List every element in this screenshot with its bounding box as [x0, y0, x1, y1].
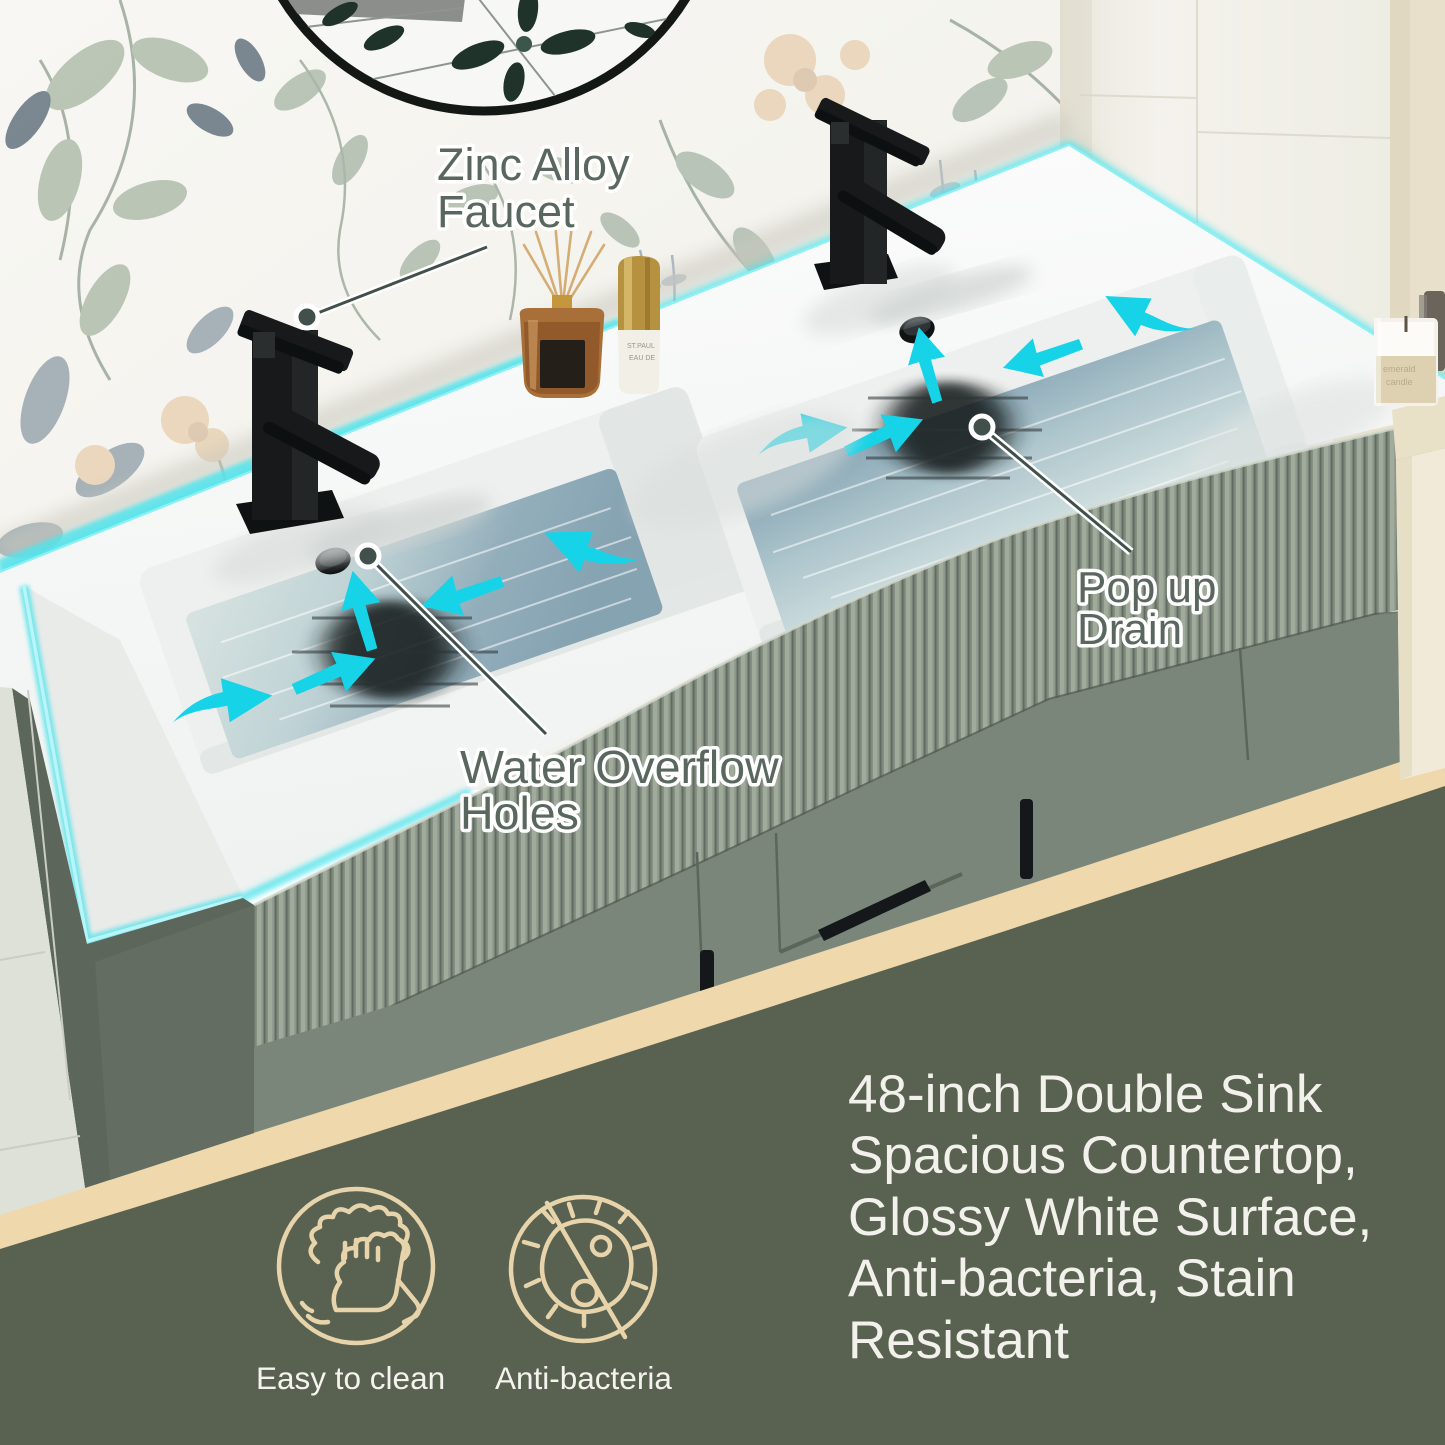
svg-text:EAU DE: EAU DE [629, 355, 655, 362]
svg-text:candle: candle [1386, 377, 1413, 387]
svg-text:Holes: Holes [460, 787, 579, 839]
svg-text:Easy to clean: Easy to clean [256, 1360, 445, 1396]
svg-text:Anti-bacteria: Anti-bacteria [495, 1360, 672, 1396]
svg-text:48-inch Double Sink: 48-inch Double Sink [848, 1065, 1323, 1124]
svg-text:Glossy White Surface,: Glossy White Surface, [848, 1188, 1372, 1247]
svg-text:Faucet: Faucet [437, 186, 575, 237]
svg-text:Zinc Alloy: Zinc Alloy [437, 139, 630, 190]
svg-text:Anti-bacteria, Stain: Anti-bacteria, Stain [848, 1249, 1296, 1308]
svg-text:Resistant: Resistant [848, 1311, 1069, 1370]
svg-text:ST.PAUL: ST.PAUL [627, 343, 655, 350]
svg-text:Spacious Countertop,: Spacious Countertop, [848, 1126, 1358, 1185]
svg-text:Drain: Drain [1077, 605, 1182, 654]
svg-text:emerald: emerald [1383, 364, 1416, 374]
svg-text:Water Overflow: Water Overflow [460, 741, 779, 793]
